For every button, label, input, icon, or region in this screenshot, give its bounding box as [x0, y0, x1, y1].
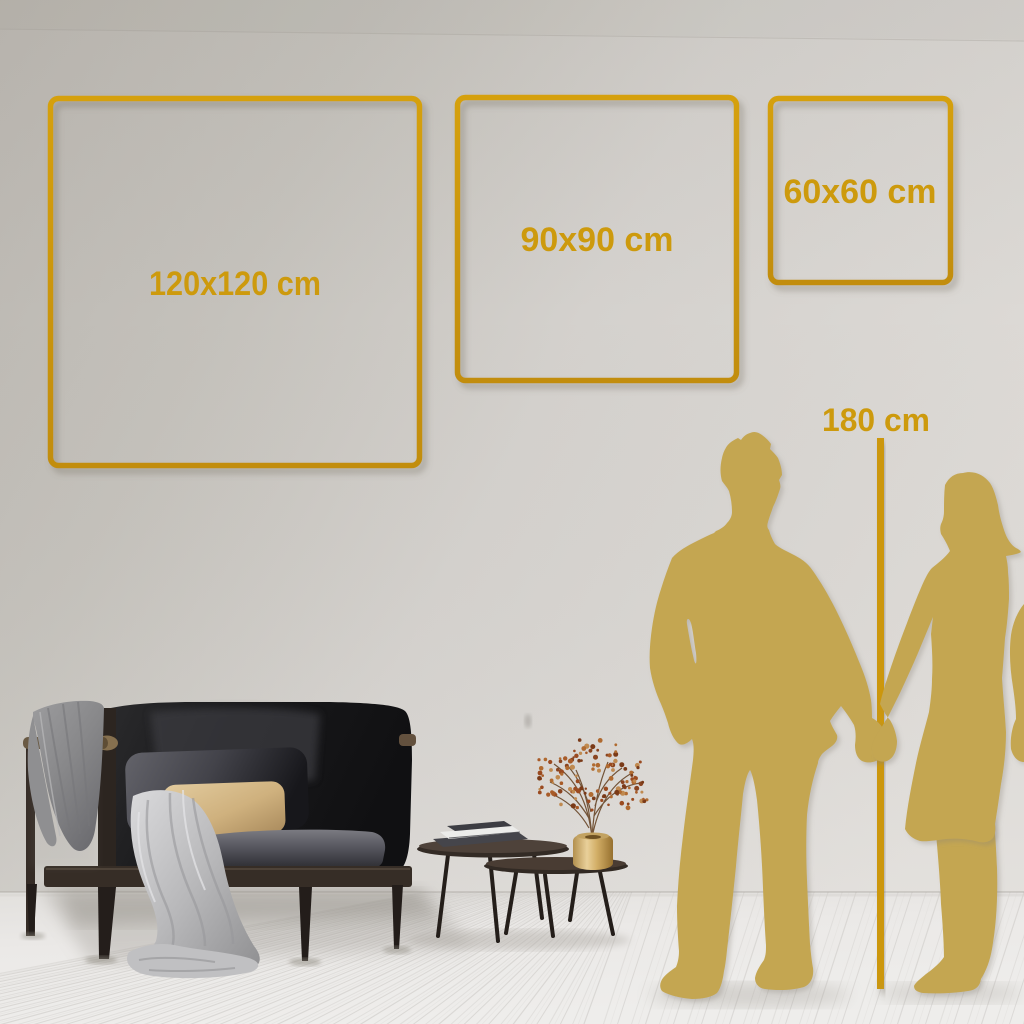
svg-text:90x90 cm: 90x90 cm	[521, 221, 674, 259]
svg-text:60x60 cm: 60x60 cm	[784, 173, 937, 211]
svg-text:180 cm: 180 cm	[822, 402, 930, 438]
svg-text:120x120 cm: 120x120 cm	[149, 265, 321, 303]
